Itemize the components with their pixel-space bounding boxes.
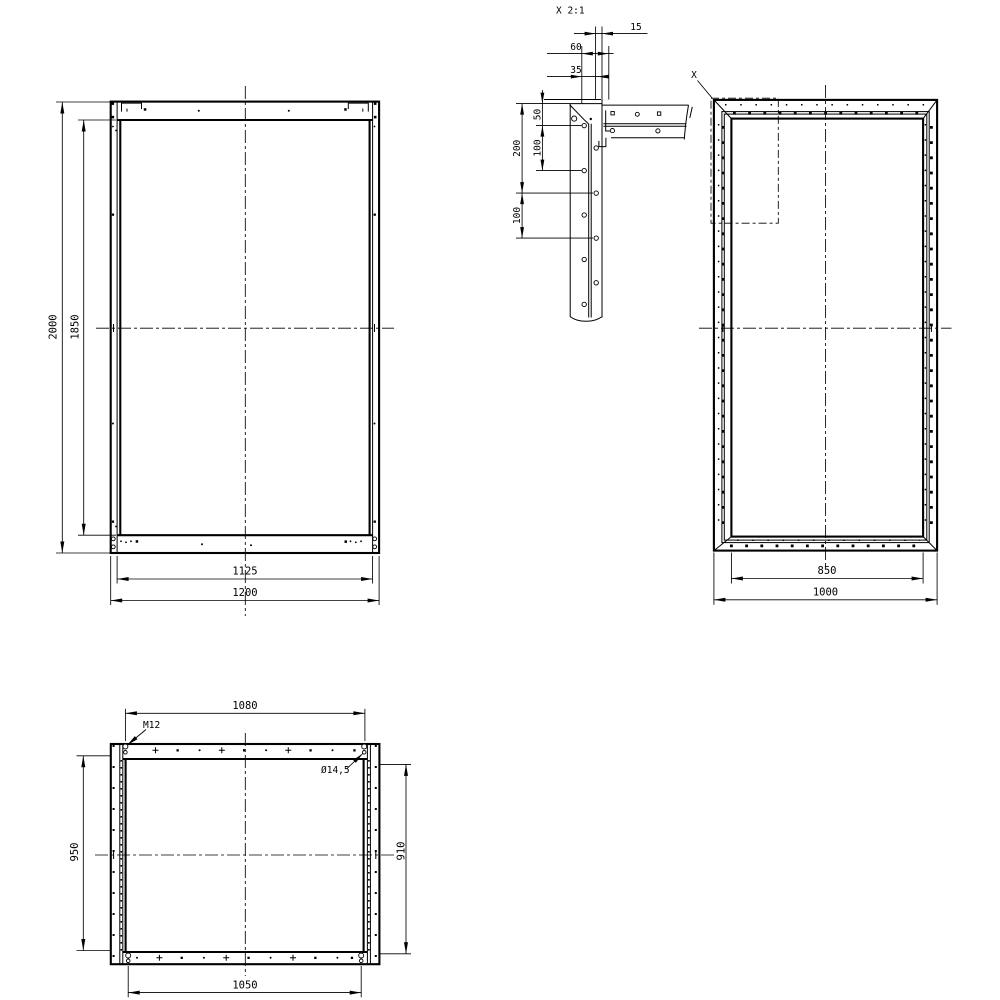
corner-bracket-left: [122, 103, 142, 112]
side-view-holes: [719, 105, 932, 546]
plan-view-centerlines: [95, 733, 397, 976]
detail-profile: [544, 100, 692, 322]
dim-200-label: 200: [512, 139, 523, 156]
detail-title: X 2:1: [556, 6, 585, 17]
detail-holes: [572, 112, 661, 307]
plan-dim-height-left-label: 950: [69, 843, 81, 862]
front-view-centerlines: [96, 86, 394, 616]
front-view-dimensions: 2000 1850 1125 1200: [48, 102, 380, 605]
side-dim-inner-width-label: 850: [818, 565, 837, 577]
dim-60-label: 60: [570, 42, 582, 53]
plan-view: 1080 M12 Ø14,5 950 910 1050: [69, 700, 411, 997]
dim-15-label: 15: [630, 22, 641, 33]
dim-100-lower-label: 100: [512, 207, 523, 224]
detail-x-label: X: [691, 70, 697, 81]
side-view-dimensions: 850 1000: [714, 553, 937, 605]
detail-x-boundary: [711, 98, 778, 223]
detail-dimensions: 15 60 35 50 100 200 100: [512, 22, 647, 238]
dim-inner-height-label: 1850: [70, 314, 82, 339]
plan-dim-height-right-label: 910: [396, 842, 408, 861]
side-inner-frame: [731, 119, 923, 537]
dim-outer-height-label: 2000: [48, 314, 60, 339]
front-view-holes: [111, 102, 376, 548]
m12-leader: [127, 730, 146, 746]
dim-outer-width-label: 1200: [232, 587, 257, 599]
dim-inner-width-label: 1125: [232, 566, 257, 578]
side-view-centerlines: [699, 85, 952, 566]
detail-view: X 2:1: [512, 6, 692, 322]
dia14-5-hole: [362, 744, 367, 749]
plan-top-rail-holes: [153, 747, 356, 753]
break-line-bottom: [570, 317, 602, 322]
dim-35-label: 35: [570, 65, 581, 76]
side-view: X 850 1000: [691, 70, 951, 605]
corner-bracket-right: [348, 103, 368, 112]
dia14-5-leader: [347, 754, 363, 769]
hole-dia-label: Ø14,5: [321, 765, 350, 776]
dim-50-label: 50: [532, 109, 543, 121]
plan-bottom-rail-holes: [136, 955, 353, 961]
plan-dim-hole-span-bottom-label: 1050: [232, 979, 257, 991]
side-dim-outer-width-label: 1000: [813, 586, 838, 598]
dim-100-upper-label: 100: [532, 139, 543, 156]
plan-view-holes: [114, 744, 376, 963]
front-view: 2000 1850 1125 1200: [48, 86, 395, 616]
break-line-right: [684, 105, 688, 139]
detail-x-leader: [698, 81, 713, 99]
detail-x-callout: X: [691, 70, 778, 223]
plan-dim-hole-span-top-label: 1080: [232, 700, 257, 712]
drawing-canvas: 2000 1850 1125 1200 X 2:1: [0, 0, 1000, 1000]
